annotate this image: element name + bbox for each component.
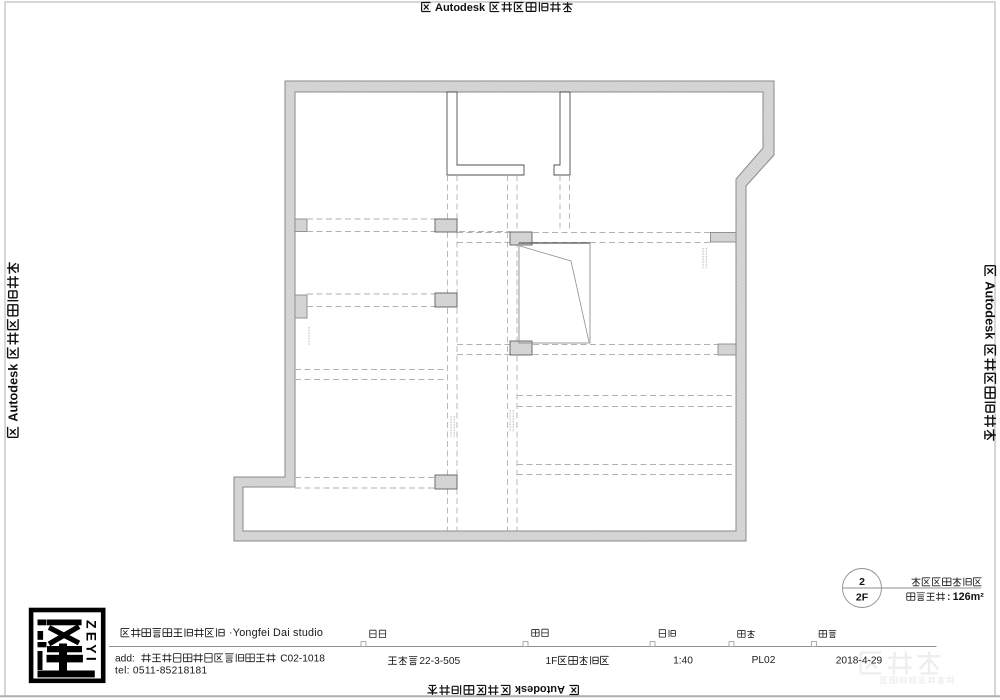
svg-text:ZEYI: ZEYI [84, 620, 100, 664]
svg-text::: : [947, 592, 950, 603]
svg-text:1F: 1F [546, 656, 558, 667]
svg-text:126m²: 126m² [953, 591, 985, 603]
svg-text:add:: add: [115, 653, 135, 664]
svg-text:Autodesk: Autodesk [514, 683, 565, 695]
svg-text:Autodesk: Autodesk [5, 363, 20, 422]
svg-text:2018-4-29: 2018-4-29 [836, 656, 883, 667]
svg-text:22-3-505: 22-3-505 [419, 656, 460, 667]
svg-text:·Yongfei Dai studio: ·Yongfei Dai studio [229, 627, 323, 639]
svg-text:Autodesk: Autodesk [435, 2, 486, 14]
svg-text:tel: 0511-85218181: tel: 0511-85218181 [115, 665, 207, 676]
svg-text:Autodesk: Autodesk [983, 281, 998, 340]
svg-text:C02-1018: C02-1018 [280, 653, 325, 664]
svg-text:2F: 2F [856, 592, 869, 604]
svg-text:PL02: PL02 [752, 655, 776, 666]
svg-text:1:40: 1:40 [673, 656, 693, 667]
svg-text:2: 2 [859, 576, 865, 588]
